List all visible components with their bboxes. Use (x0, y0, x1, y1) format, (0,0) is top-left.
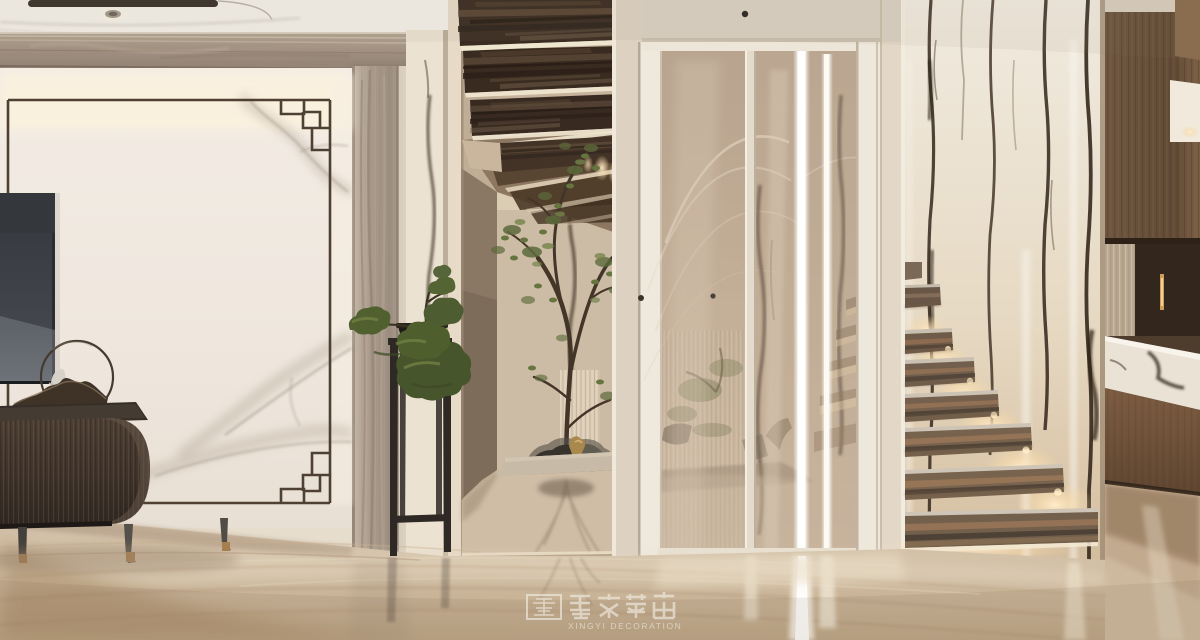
svg-text:XINGYI DECORATION: XINGYI DECORATION (568, 621, 682, 631)
